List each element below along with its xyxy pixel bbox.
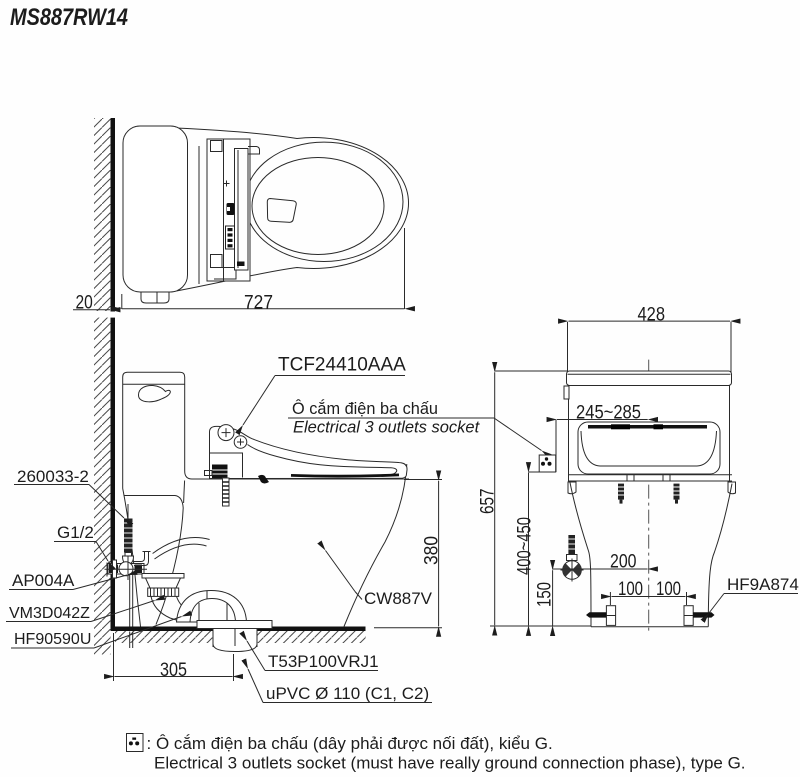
- svg-text:HF90590U: HF90590U: [14, 631, 91, 648]
- svg-text:Electrical 3 outlets socket (m: Electrical 3 outlets socket (must have r…: [154, 754, 746, 773]
- svg-text:: Ô cắm điện ba chấu (dây phải: : Ô cắm điện ba chấu (dây phải được nối …: [147, 734, 553, 753]
- svg-text:428: 428: [638, 305, 666, 326]
- svg-text:260033-2: 260033-2: [17, 467, 89, 486]
- svg-text:AP004A: AP004A: [12, 571, 75, 590]
- svg-text:CW887V: CW887V: [364, 589, 433, 608]
- svg-text:HF9A874: HF9A874: [727, 575, 799, 594]
- svg-text:380: 380: [422, 536, 443, 565]
- svg-text:VM3D042Z: VM3D042Z: [9, 605, 90, 622]
- svg-text:150: 150: [535, 582, 556, 607]
- svg-text:Ô cắm điện ba chấu: Ô cắm điện ba chấu: [292, 399, 438, 418]
- svg-text:657: 657: [477, 489, 498, 515]
- svg-text:Electrical 3 outlets socket: Electrical 3 outlets socket: [293, 419, 481, 437]
- svg-text:TCF24410AAA: TCF24410AAA: [278, 355, 406, 376]
- svg-text:T53P100VRJ1: T53P100VRJ1: [268, 652, 379, 671]
- svg-text:20: 20: [76, 293, 93, 314]
- svg-text:245~285: 245~285: [576, 403, 641, 424]
- svg-text:uPVC Ø 110 (C1, C2): uPVC Ø 110 (C1, C2): [266, 684, 429, 703]
- svg-text:400~450: 400~450: [515, 517, 536, 575]
- svg-text:305: 305: [160, 660, 187, 681]
- svg-text:MS887RW14: MS887RW14: [10, 4, 128, 31]
- svg-text:727: 727: [244, 293, 273, 314]
- svg-text:G1/2: G1/2: [57, 523, 94, 542]
